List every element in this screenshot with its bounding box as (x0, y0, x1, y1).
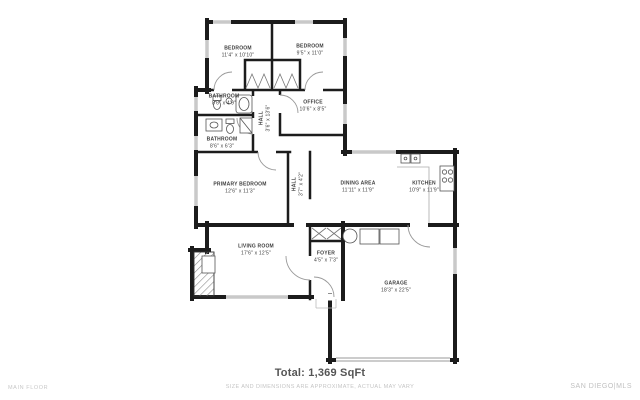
door-swing (286, 256, 310, 280)
floor-name-label: MAIN FLOOR (8, 385, 48, 391)
room-label-bedroom-2: BEDROOM 9'5" x 11'0" (296, 43, 324, 57)
room-label-garage: GARAGE 18'3" x 22'5" (381, 280, 411, 294)
room-label-bathroom-2: BATHROOM 8'6" x 6'3" (207, 136, 238, 150)
stove-burner (442, 170, 446, 174)
room-label-living-room: LIVING ROOM 17'6" x 12'5" (238, 243, 274, 257)
room-label-hall-2: HALL 3'7" x 4'2" (291, 172, 305, 196)
room-label-bathroom-1: BATHROOM 8'6" x 4'9" (209, 93, 240, 107)
sink (210, 122, 218, 128)
stove-burner (442, 178, 446, 182)
room-label-bedroom-1: BEDROOM 11'4" x 10'10" (222, 45, 255, 59)
washer (360, 229, 379, 244)
door-swing (408, 225, 430, 247)
water-heater (343, 229, 357, 243)
room-label-hall-1: HALL 3'6" x 13'6" (258, 104, 272, 131)
bifold-door (246, 74, 270, 88)
room-label-kitchen: KITCHEN 10'9" x 11'9" (409, 180, 439, 194)
bifold-door (274, 74, 298, 88)
closet-bifold-doors (246, 74, 341, 239)
room-label-dining-area: DINING AREA 11'11" x 11'9" (340, 180, 375, 194)
mls-brand-logo: SAN DIEGO|MLS (570, 383, 632, 390)
bathtub-basin (239, 98, 249, 111)
floor-plan-drawing (0, 0, 640, 400)
room-label-primary-bedroom: PRIMARY BEDROOM 12'6" x 11'3" (213, 181, 266, 195)
total-sqft-text: Total: 1,369 SqFt (0, 367, 640, 379)
stove-burner (448, 170, 452, 174)
bifold-door (312, 228, 341, 239)
room-label-office: OFFICE 10'6" x 8'5" (299, 99, 326, 113)
floor-plan-page: BEDROOM 11'4" x 10'10" BEDROOM 9'5" x 11… (0, 0, 640, 400)
kitchen-sink-drain (414, 157, 417, 160)
toilet-tank (226, 119, 234, 124)
disclaimer-text: SIZE AND DIMENSIONS ARE APPROXIMATE, ACT… (0, 384, 640, 390)
dryer (380, 229, 399, 244)
stove-burner (448, 178, 452, 182)
kitchen-sink-drain (404, 157, 407, 160)
toilet (227, 125, 234, 134)
kitchen-counter (397, 167, 429, 223)
room-label-foyer: FOYER 4'5" x 7'3" (314, 250, 338, 264)
fireplace (194, 252, 215, 296)
